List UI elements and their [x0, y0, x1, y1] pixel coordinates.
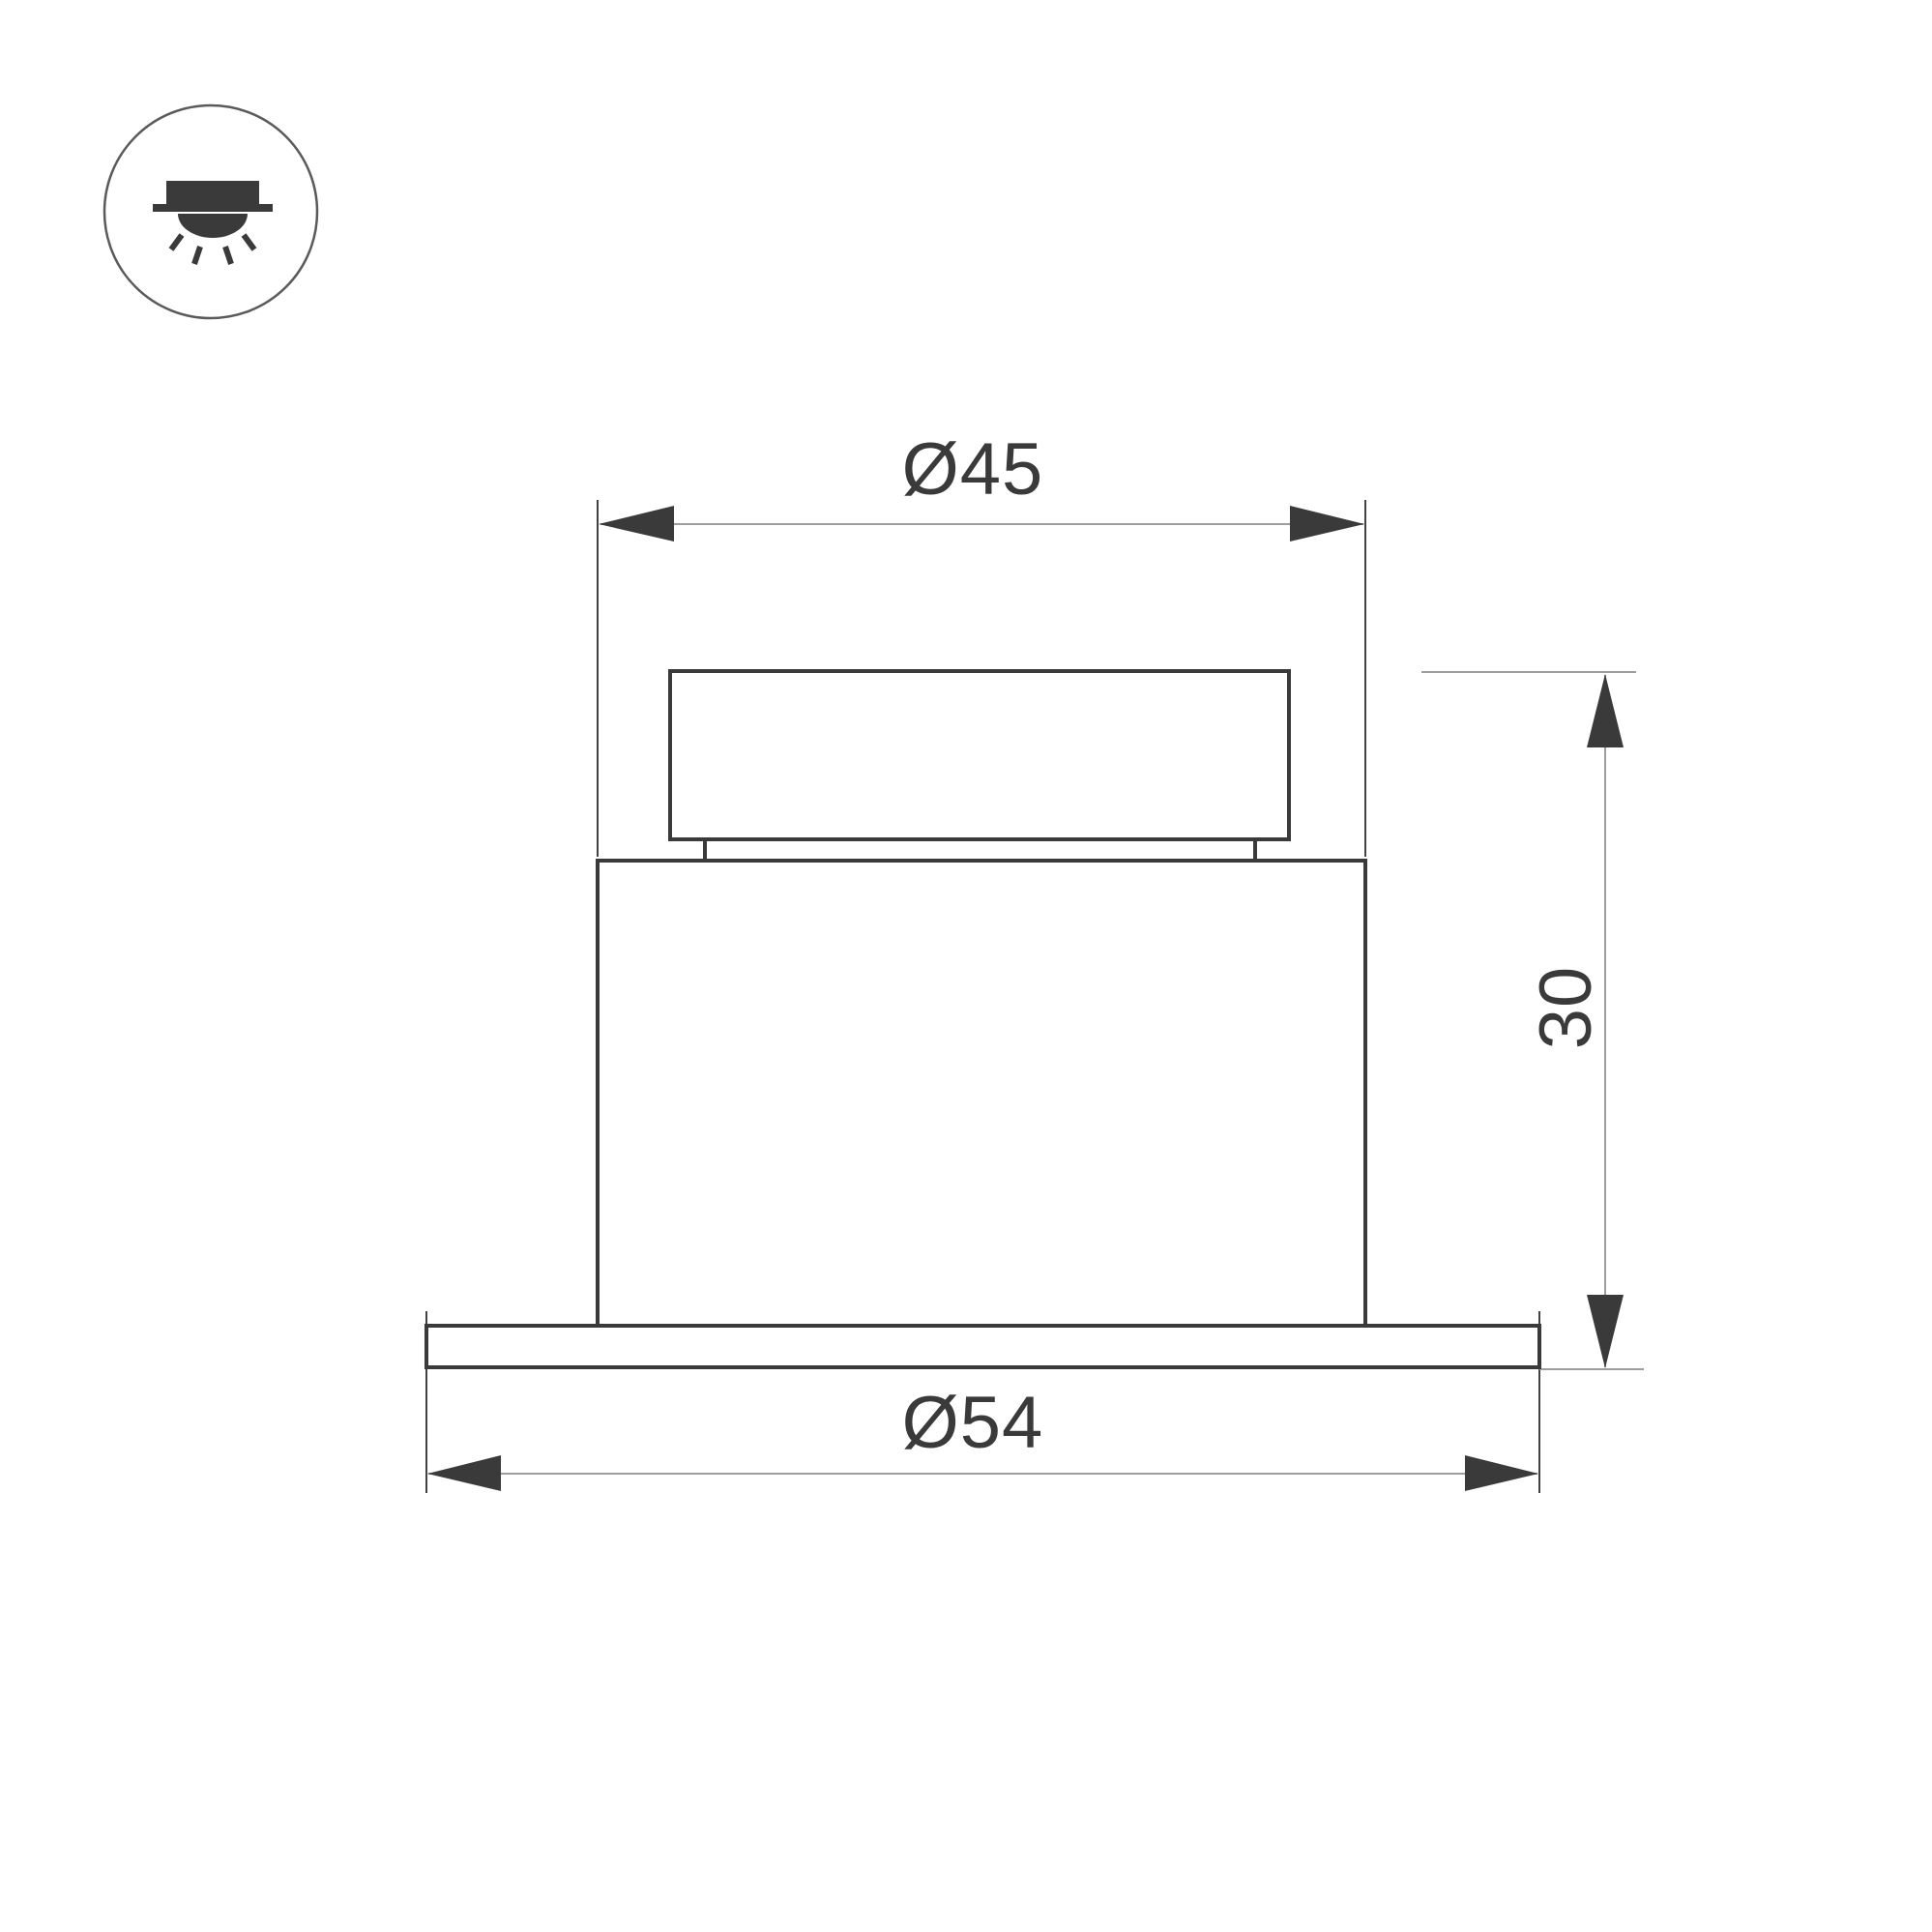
fixture-body — [598, 861, 1365, 1328]
technical-drawing: Ø45 Ø54 30 — [0, 0, 1932, 1932]
icon-fixture-body — [166, 181, 259, 206]
arrowhead-left — [599, 506, 674, 542]
fixture-flange — [426, 1326, 1539, 1367]
arrowhead-right — [1290, 506, 1364, 542]
icon-ceiling-bar — [153, 204, 273, 212]
dimension-label: Ø54 — [902, 1382, 1044, 1464]
fixture-cross-section — [426, 671, 1539, 1367]
arrowhead-top — [1587, 674, 1624, 747]
arrowhead-bottom — [1587, 1295, 1624, 1368]
fixture-top-box — [670, 671, 1289, 839]
arrowhead-left — [427, 1455, 501, 1491]
recessed-downlight-icon — [104, 105, 317, 318]
dimension-label: 30 — [1525, 966, 1607, 1050]
dimension-label: Ø45 — [902, 428, 1044, 511]
technical-drawing-page: Ø45 Ø54 30 — [0, 0, 1932, 1932]
arrowhead-right — [1465, 1455, 1538, 1491]
dimension-height: 30 — [1421, 672, 1644, 1369]
